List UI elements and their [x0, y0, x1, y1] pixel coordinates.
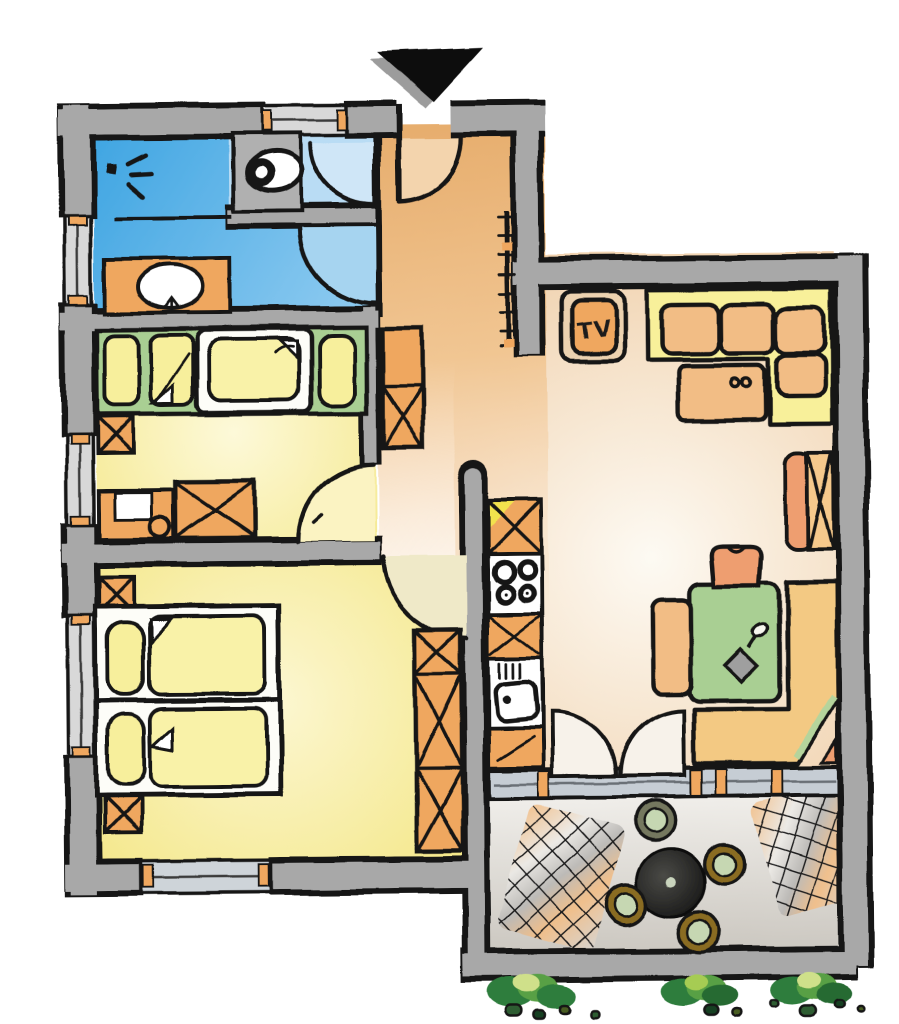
hall-cabinet	[382, 328, 423, 448]
coffee-table	[679, 365, 765, 420]
bed-mattress-upper	[149, 616, 266, 695]
balcony-chair	[678, 912, 718, 952]
sofa-cushion	[662, 305, 718, 354]
window-bedroom-left	[68, 615, 95, 756]
sofa-cushion	[777, 355, 825, 395]
dining-chair-top	[711, 546, 762, 586]
window-kids-room	[66, 435, 93, 525]
kitchen-cabinet-top	[487, 499, 541, 553]
kitchen-cabinet-bottom	[489, 727, 543, 767]
balcony-chair	[705, 843, 745, 883]
kitchen-counter	[488, 613, 542, 657]
sideboard	[785, 452, 834, 549]
dining-table	[689, 583, 780, 702]
floor-plan: TV	[0, 0, 899, 1024]
dining-chair-left	[653, 600, 692, 694]
tv-label: TV	[576, 316, 613, 345]
bed-pillow-upper	[107, 623, 144, 695]
kids-nightstand	[97, 417, 133, 453]
bedroom-nightstand-bottom	[104, 797, 140, 833]
sofa-cushion	[776, 308, 824, 353]
kids-mattress-1	[104, 335, 139, 406]
balcony-chair	[606, 884, 646, 924]
floor-plan-page: TV	[0, 0, 899, 1024]
window-bedroom-bottom	[141, 860, 271, 893]
bed-pillow-lower	[108, 715, 145, 785]
kids-wardrobe	[176, 482, 254, 539]
window-top-wc	[262, 105, 346, 136]
kids-desk	[98, 490, 174, 539]
balcony-chair	[635, 800, 675, 840]
cooktop-icon	[487, 553, 542, 613]
kids-pillow	[318, 335, 355, 405]
sofa-cushion	[720, 304, 774, 353]
kids-desk-stool	[150, 516, 170, 536]
bedroom-wardrobe	[415, 630, 463, 850]
tv-cabinet: TV	[561, 291, 626, 361]
window-bathroom	[64, 216, 91, 305]
kitchenette-units	[487, 499, 543, 767]
kitchen-sink	[488, 657, 543, 727]
washbasin	[104, 258, 230, 313]
